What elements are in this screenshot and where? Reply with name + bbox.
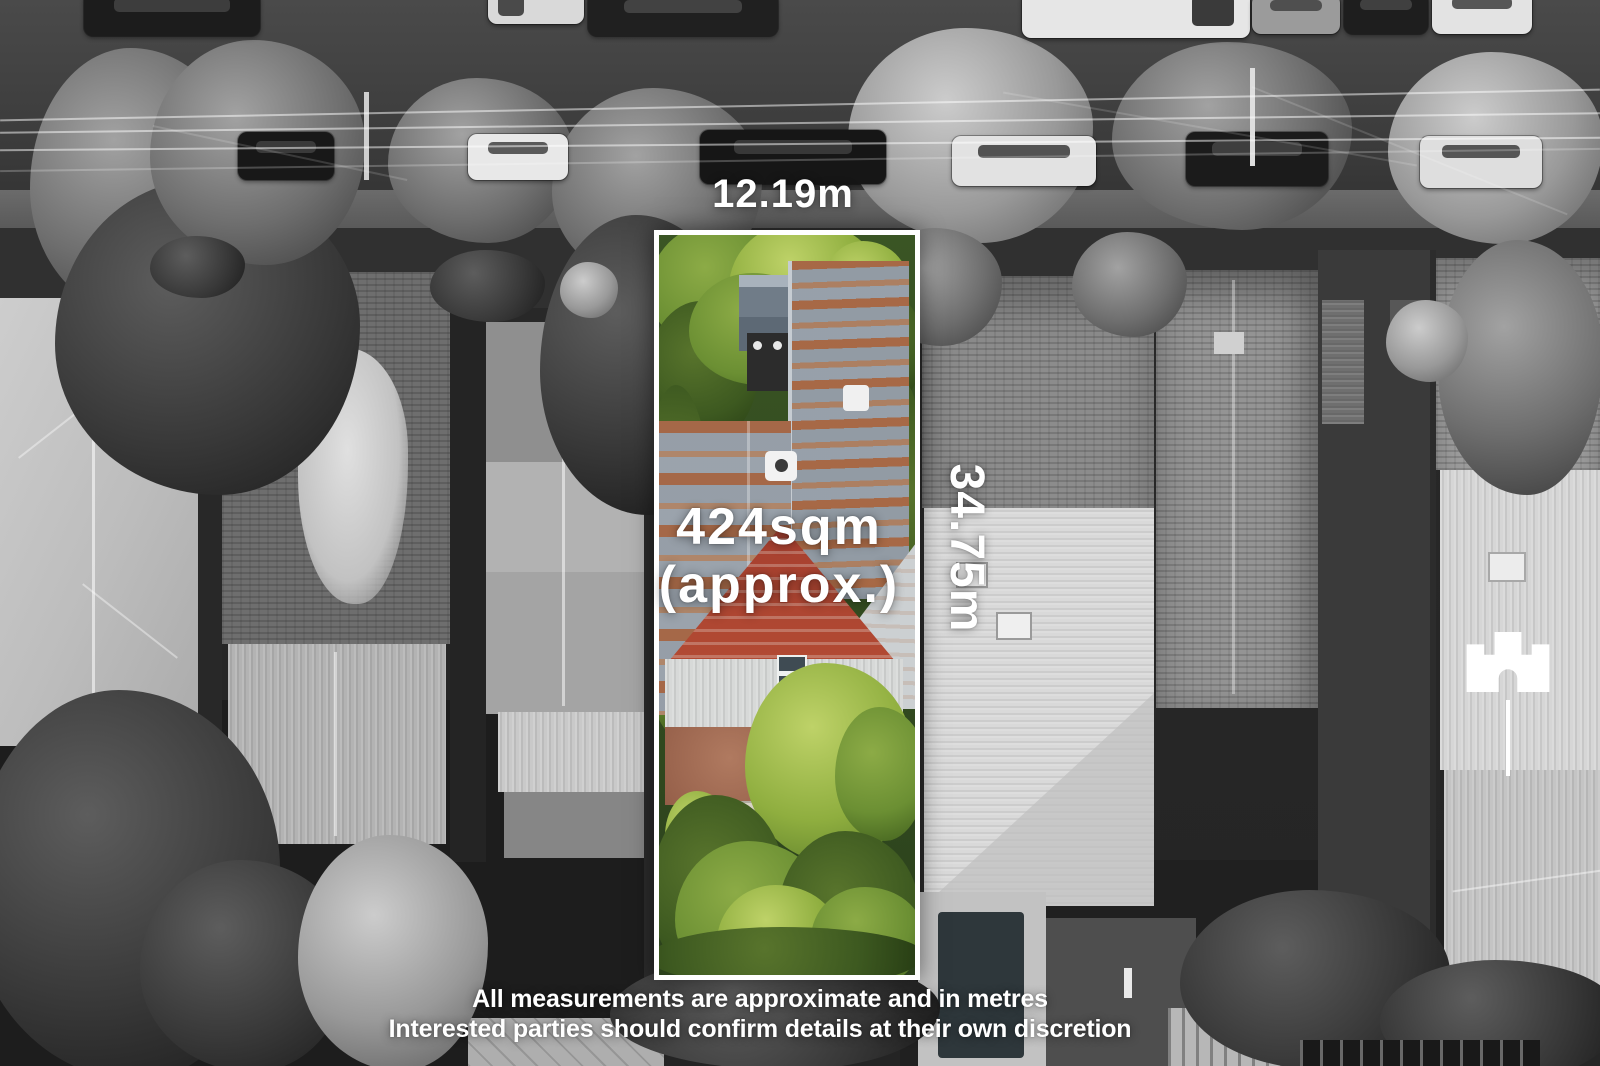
house-roof	[1440, 470, 1600, 770]
chimney-pot	[753, 341, 762, 350]
bush	[430, 250, 545, 322]
skylight	[843, 385, 869, 411]
skylight-vent	[775, 459, 788, 472]
parked-car	[488, 0, 584, 24]
roof-window	[1214, 332, 1244, 354]
logo-pole	[1506, 700, 1510, 776]
parked-car	[238, 132, 334, 180]
street-tree	[1072, 232, 1187, 337]
parked-car	[1344, 0, 1428, 34]
parked-car	[84, 0, 260, 36]
disclaimer-line-2: Interested parties should confirm detail…	[300, 1014, 1220, 1044]
skylight	[996, 612, 1032, 640]
deck	[504, 792, 646, 858]
skylight	[1488, 552, 1526, 582]
roof-ridge	[334, 652, 337, 836]
hedge	[450, 262, 486, 862]
foliage	[654, 927, 920, 980]
bush	[150, 236, 245, 298]
frontage-label: 12.19m	[583, 172, 983, 216]
parked-car	[1252, 0, 1340, 34]
parked-car	[468, 134, 568, 180]
parked-car	[1432, 0, 1532, 34]
bush	[560, 262, 618, 318]
aerial-photo: 12.19m 424sqm (approx.) 34.75m All measu…	[0, 0, 1600, 1066]
bush	[1386, 300, 1468, 382]
pergola-frame	[1300, 1040, 1540, 1066]
depth-label: 34.75m	[939, 418, 993, 678]
area-value: 424sqm	[629, 498, 929, 556]
disclaimer-line-1: All measurements are approximate and in …	[300, 984, 1220, 1014]
foliage	[835, 707, 920, 841]
area-label: 424sqm (approx.)	[629, 498, 929, 614]
castle-icon	[1466, 632, 1550, 692]
street-tree	[1438, 240, 1600, 495]
parked-car	[588, 0, 778, 36]
parked-van	[1022, 0, 1250, 38]
chimney-pot	[773, 341, 782, 350]
awning	[1322, 300, 1364, 424]
area-qualifier: (approx.)	[629, 556, 929, 614]
shed-roof	[498, 712, 648, 792]
